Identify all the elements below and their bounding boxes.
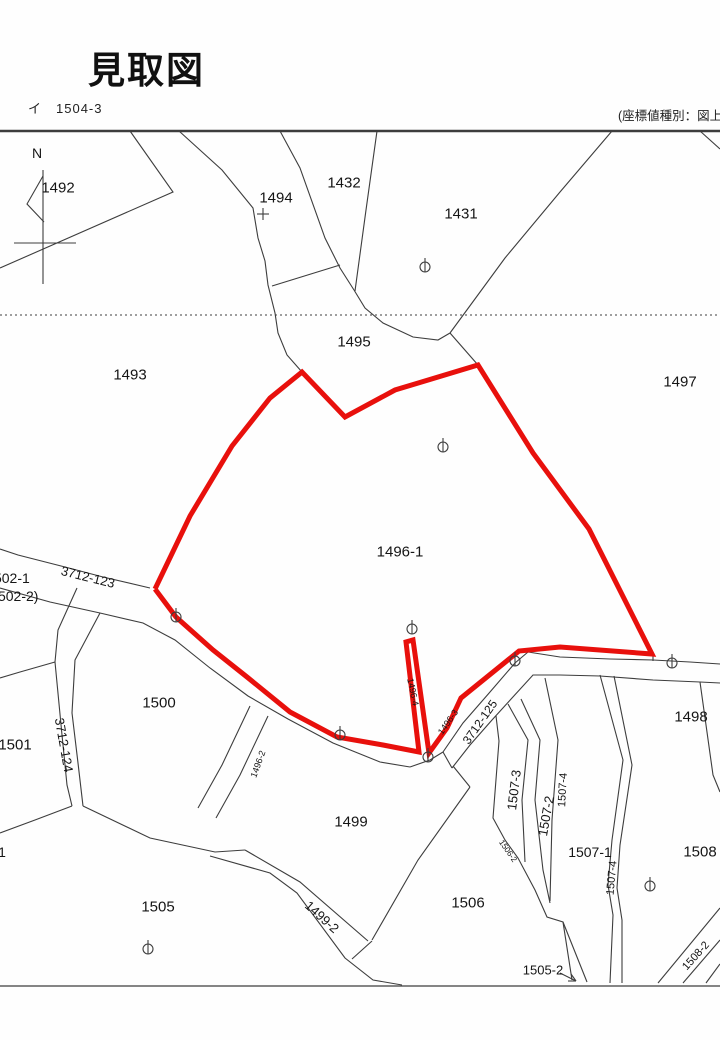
parcel-label-1495: 1495 (337, 334, 370, 351)
parcel-label-15022: (1502-2) (0, 588, 38, 604)
survey-point-marker (143, 940, 153, 954)
parcel-label-1432: 1432 (327, 175, 360, 192)
parcel-boundary-line (443, 752, 452, 768)
parcel-label-15052: 1505-2 (523, 963, 563, 978)
parcel-boundary-line (450, 131, 612, 333)
parcel-boundary-line (700, 682, 720, 792)
plus-point-marker (257, 208, 269, 220)
parcel-boundary-line (410, 752, 443, 767)
north-N: N (32, 145, 42, 161)
parcel-label-1501: 1501 (0, 737, 32, 754)
parcel-label-1506: 1506 (451, 895, 484, 912)
survey-point-marker (420, 258, 430, 272)
parcel-boundary-line (706, 964, 720, 983)
survey-point-marker (645, 877, 655, 891)
parcel-boundary-line (453, 766, 470, 787)
parcel-label-15021: 1502-1 (0, 570, 30, 586)
parcel-boundary-line (55, 588, 77, 806)
parcel-boundary-line (72, 613, 100, 806)
parcel-label-1: 1 (0, 844, 6, 860)
survey-point-marker (335, 726, 345, 740)
parcel-boundary-line (563, 922, 572, 980)
parcel-boundary-line (700, 131, 720, 149)
parcel-label-1492: 1492 (41, 180, 74, 197)
parcel-label-1500: 1500 (142, 695, 175, 712)
parcel-boundary-line (245, 850, 368, 941)
parcel-label-1499: 1499 (334, 814, 367, 831)
parcel-label-15074: 1507-4 (556, 773, 570, 808)
parcel-boundary-line (198, 706, 250, 808)
parcel-label-1508: 1508 (683, 844, 716, 861)
parcel-label-1494: 1494 (259, 190, 292, 207)
parcel-boundary-line (0, 131, 173, 268)
parcel-label-14961: 1496-1 (377, 544, 424, 561)
parcel-label-1498: 1498 (674, 709, 707, 726)
parcel-label-1505: 1505 (141, 899, 174, 916)
parcel-boundary-line (450, 333, 478, 365)
parcel-boundary-line (355, 131, 377, 291)
cadastral-sketch-map-page: 見取図 イ1504-3 (座標値種別：図上測定) N14921494143214… (0, 0, 720, 1040)
parcel-label-15071: 1507-1 (568, 844, 612, 860)
survey-point-marker (438, 438, 448, 452)
parcel-boundary-line (280, 131, 354, 290)
parcel-boundary-line (179, 131, 302, 372)
survey-point-marker (407, 620, 417, 634)
parcel-label-1493: 1493 (113, 367, 146, 384)
parcel-boundary-line (83, 806, 245, 852)
parcel-boundary-line (210, 856, 402, 985)
parcel-boundary-line (352, 941, 372, 959)
parcel-boundary-line (0, 806, 72, 833)
parcel-boundary-line (614, 676, 632, 983)
parcel-boundary-line (372, 787, 470, 940)
parcel-label-1431: 1431 (444, 206, 477, 223)
parcel-boundary-line (0, 662, 55, 678)
parcel-label-1497: 1497 (663, 374, 696, 391)
parcel-boundary-line (272, 265, 340, 286)
parcel-boundary-line (600, 675, 623, 983)
